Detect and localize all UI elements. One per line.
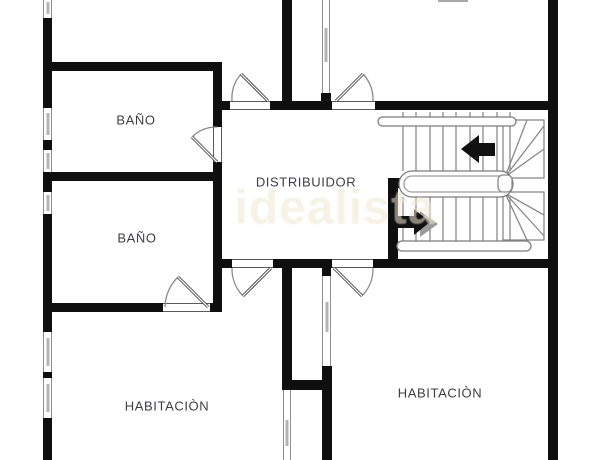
stair-handrail (399, 171, 513, 197)
wall (548, 0, 558, 460)
wall (213, 259, 232, 268)
wall (43, 172, 222, 181)
door-opening (163, 303, 210, 312)
room-label-bathroom-top: BAÑO (116, 113, 155, 128)
window (43, 332, 52, 372)
wall (213, 62, 222, 127)
wall (43, 214, 52, 332)
door-top-left-room (232, 74, 268, 101)
wall (282, 0, 292, 110)
window (43, 192, 52, 214)
stair-rail-top (378, 117, 516, 126)
wall (213, 162, 222, 312)
wall (322, 268, 331, 276)
door-bedroom-left (232, 268, 271, 296)
door-bedroom-right (334, 268, 373, 296)
wall (388, 178, 398, 268)
wall (373, 259, 548, 268)
stair-winder-fan-lower (503, 192, 544, 240)
stair-arrow-left-icon (461, 135, 495, 163)
window (43, 378, 52, 418)
wall (270, 101, 332, 110)
wall-fragment (438, 0, 468, 2)
stair-arrow-right-icon (397, 209, 430, 235)
stair-winder-fan-upper (503, 120, 544, 178)
stair-arrow-right-shadow-icon (420, 211, 438, 237)
stair-treads-upper (403, 112, 510, 171)
wall (322, 366, 332, 460)
stair-treads-lower (403, 197, 510, 241)
stair-handrail-joint (498, 175, 512, 192)
window (43, 108, 52, 140)
room-label-bedroom-right: HABITACIÒN (398, 386, 483, 401)
wall (282, 268, 292, 390)
door-opening (232, 259, 273, 268)
room-label-hallway: DISTRIBUIDOR (256, 175, 356, 190)
door-opening (213, 127, 222, 162)
door-opening (230, 101, 270, 110)
wall (43, 62, 222, 71)
window (43, 150, 52, 172)
wall (213, 101, 230, 110)
stair-rail-bottom (397, 241, 531, 251)
window (43, 0, 52, 18)
wall (210, 303, 222, 312)
interior-window (322, 276, 331, 366)
wall (375, 101, 558, 110)
room-label-bathroom-middle: BAÑO (117, 231, 156, 246)
interior-window (322, 0, 330, 93)
door-opening (332, 259, 373, 268)
door-opening (332, 101, 375, 110)
interior-window (283, 390, 291, 460)
floor-plan: BAÑO BAÑO DISTRIBUIDOR HABITACIÒN HABITA… (0, 0, 600, 460)
wall (43, 303, 163, 312)
door-top-right-room (336, 74, 373, 101)
wall (43, 418, 52, 460)
wall (43, 140, 52, 150)
room-label-bedroom-left: HABITACIÒN (125, 399, 210, 414)
wall (273, 259, 332, 268)
